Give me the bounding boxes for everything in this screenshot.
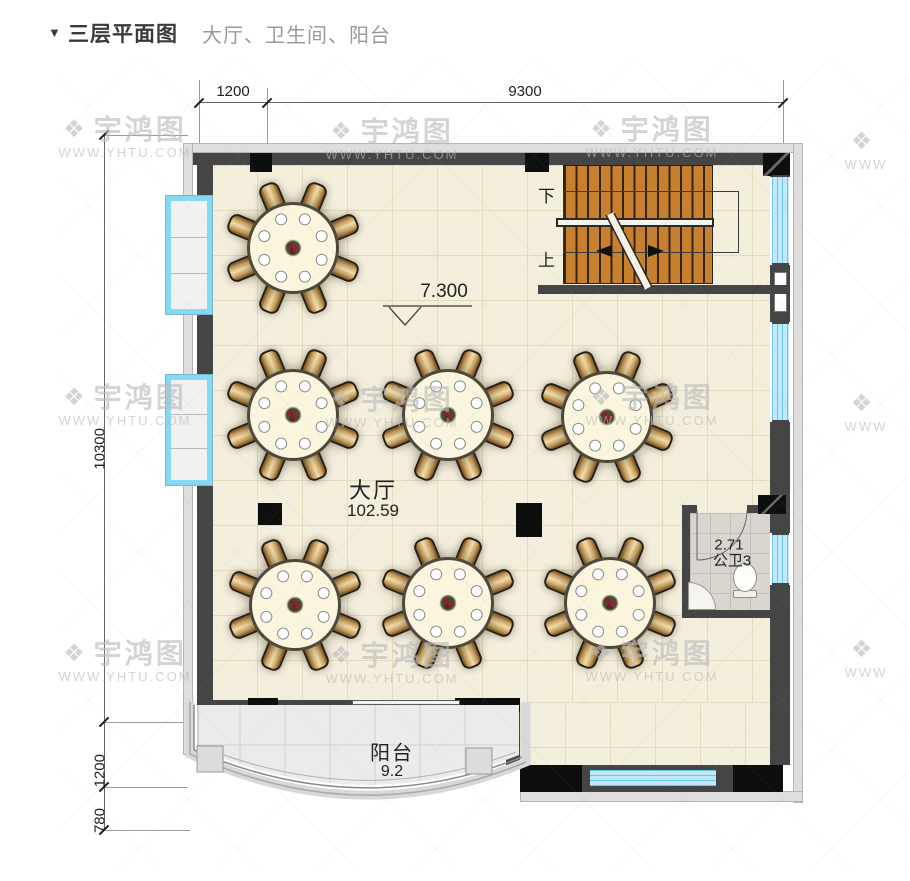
dim-top-9300: 9300 bbox=[508, 83, 541, 100]
yhtu-logo-icon: ❖ bbox=[851, 128, 876, 155]
floorplan-page: ▼ 三层平面图 大厅、卫生间、阳台 1200 9300 10300 1200 7… bbox=[0, 0, 910, 881]
stairs-up-label: 上 bbox=[538, 246, 555, 271]
window-right-upper bbox=[772, 175, 789, 265]
dining-table bbox=[381, 536, 515, 670]
flower-centerpiece bbox=[283, 405, 303, 425]
top-dimension-line bbox=[199, 102, 783, 103]
extension-line bbox=[783, 80, 784, 146]
window-bathroom bbox=[772, 533, 789, 585]
wall-balcony-right bbox=[506, 712, 520, 767]
sliding-door-panel bbox=[352, 700, 460, 705]
column bbox=[248, 698, 278, 716]
dining-table bbox=[228, 538, 362, 672]
dining-table bbox=[540, 350, 674, 484]
page-subtitle: 大厅、卫生间、阳台 bbox=[202, 19, 391, 48]
flower-centerpiece bbox=[600, 593, 620, 613]
dining-table bbox=[226, 348, 360, 482]
dim-left-10300: 10300 bbox=[92, 428, 109, 470]
hall-area-label: 102.59 bbox=[347, 501, 399, 521]
sliding-door-panel bbox=[352, 707, 460, 712]
dining-table bbox=[543, 536, 677, 670]
dim-left-780: 780 bbox=[92, 808, 109, 833]
window-sill-line bbox=[171, 448, 207, 449]
left-dimension-line bbox=[104, 135, 105, 830]
wall-left-seg1 bbox=[197, 153, 213, 198]
extension-line bbox=[104, 830, 190, 831]
corner-column bbox=[733, 765, 783, 792]
watermark: ❖宇鸿图WWW.YHTU.COM bbox=[58, 639, 191, 685]
hall-floor-extension bbox=[520, 702, 770, 765]
outer-band-bottom bbox=[520, 791, 803, 802]
flower-centerpiece bbox=[438, 405, 458, 425]
wall-top bbox=[193, 153, 790, 165]
yhtu-logo-icon: ❖ bbox=[330, 118, 355, 145]
window-sill-line bbox=[171, 273, 207, 274]
extension-line bbox=[199, 80, 200, 146]
dining-table bbox=[226, 181, 360, 315]
bathroom-wall-bottom bbox=[682, 610, 790, 618]
stair-handrail bbox=[556, 218, 714, 227]
watermark: ❖宇鸿图WWW.YHTU.COM bbox=[58, 115, 191, 161]
window-bay-lower bbox=[166, 375, 212, 485]
yhtu-logo-icon: ❖ bbox=[63, 116, 88, 143]
balcony-area-label: 9.2 bbox=[381, 763, 403, 781]
column bbox=[250, 153, 272, 172]
extension-line bbox=[267, 88, 268, 146]
dining-table bbox=[381, 348, 515, 482]
wall-bottom-left bbox=[197, 700, 360, 714]
yhtu-logo-icon: ❖ bbox=[63, 640, 88, 667]
corner-column bbox=[763, 153, 790, 176]
level-label: 7.300 bbox=[420, 281, 468, 303]
extension-line bbox=[104, 722, 190, 723]
flower-centerpiece bbox=[283, 238, 303, 258]
flower-centerpiece bbox=[597, 407, 617, 427]
title-marker-icon: ▼ bbox=[48, 24, 61, 42]
wall-left-seg2 bbox=[197, 312, 213, 377]
watermark: ❖WWW bbox=[845, 635, 888, 681]
wall-left-seg3 bbox=[197, 483, 213, 702]
outer-band-top bbox=[183, 143, 803, 153]
extension-line bbox=[104, 135, 188, 136]
column bbox=[258, 503, 282, 525]
corner-column bbox=[520, 765, 582, 792]
flower-centerpiece bbox=[438, 593, 458, 613]
yhtu-logo-icon: ❖ bbox=[63, 384, 88, 411]
window-sill-line bbox=[171, 414, 207, 415]
watermark: ❖WWW bbox=[845, 127, 888, 173]
yhtu-logo-icon: ❖ bbox=[851, 636, 876, 663]
dim-left-1200: 1200 bbox=[92, 754, 109, 787]
window-right-lower bbox=[772, 322, 789, 422]
flower-centerpiece bbox=[285, 595, 305, 615]
window-bay-upper bbox=[166, 196, 212, 314]
page-title: 三层平面图 bbox=[68, 18, 178, 48]
outer-band-right bbox=[793, 143, 803, 803]
dim-top-1200: 1200 bbox=[216, 83, 249, 100]
bath-name-label: 公卫3 bbox=[713, 550, 751, 571]
wall-stair-hall bbox=[538, 285, 790, 294]
balcony-name-label: 阳台 bbox=[370, 737, 414, 766]
extension-line bbox=[104, 787, 188, 788]
column bbox=[516, 503, 542, 537]
wall-right-seg3 bbox=[770, 422, 790, 533]
watermark: ❖WWW bbox=[845, 389, 888, 435]
corner-column bbox=[758, 495, 786, 514]
window-bottom bbox=[588, 770, 718, 786]
stairs-down-label: 下 bbox=[538, 182, 555, 207]
window-sill-line bbox=[171, 237, 207, 238]
yhtu-logo-icon: ❖ bbox=[851, 390, 876, 417]
yhtu-logo-icon: ❖ bbox=[590, 116, 615, 143]
column bbox=[525, 153, 549, 172]
